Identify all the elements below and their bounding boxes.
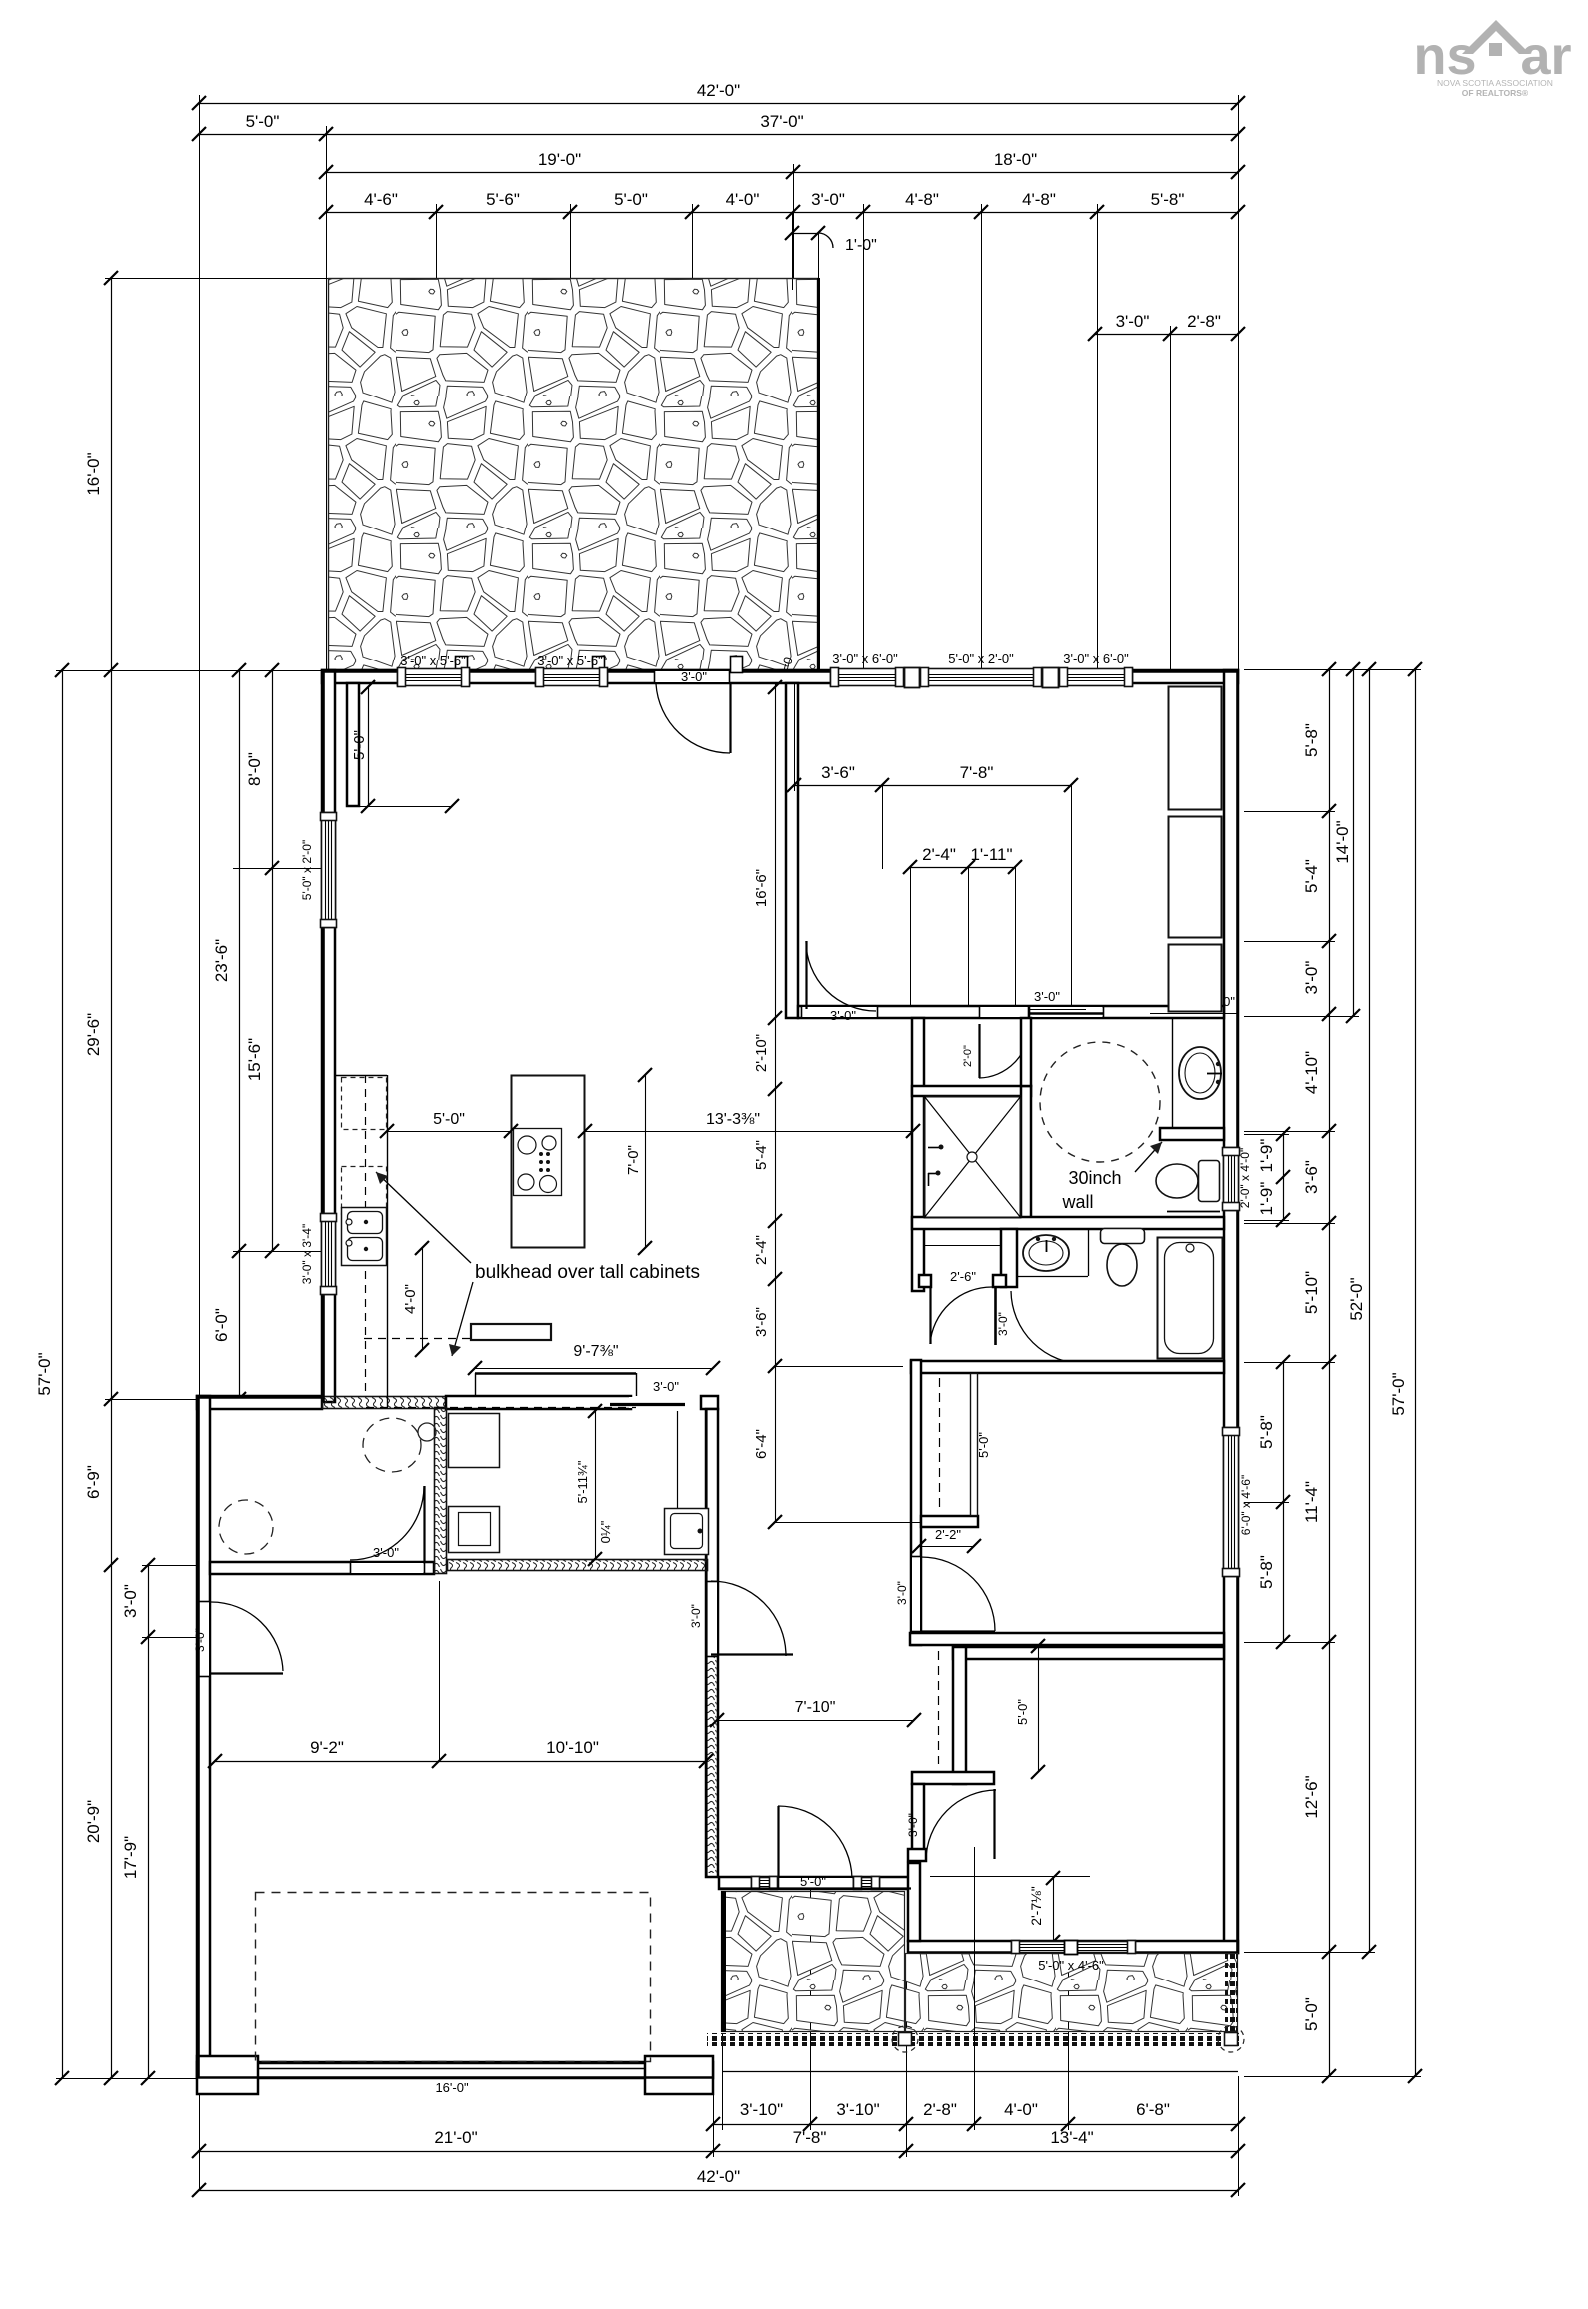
svg-text:13'-4": 13'-4" [1050,2128,1093,2147]
svg-text:5'-0": 5'-0" [246,112,280,131]
svg-text:5'-8": 5'-8" [1257,1415,1276,1449]
svg-text:10'-10": 10'-10" [546,1738,599,1757]
svg-text:3'-0" x 3'-4": 3'-0" x 3'-4" [300,1224,314,1284]
svg-text:2'-8": 2'-8" [1187,312,1221,331]
svg-text:16'-0": 16'-0" [435,2080,469,2095]
svg-text:ar: ar [1520,26,1571,86]
svg-text:2'-4": 2'-4" [753,1235,770,1265]
svg-text:5'-8": 5'-8" [1257,1555,1276,1589]
svg-text:3'-0" x 5'-6": 3'-0" x 5'-6" [537,653,603,668]
svg-text:ns: ns [1413,26,1476,86]
svg-text:37'-0": 37'-0" [760,112,803,131]
svg-text:5'-4": 5'-4" [1302,859,1321,893]
svg-text:3'-0": 3'-0" [996,1312,1010,1336]
svg-text:7'-8": 7'-8" [793,2128,827,2147]
svg-text:4'-8": 4'-8" [905,190,939,209]
svg-text:3'-6": 3'-6" [753,1307,770,1337]
svg-text:16'-6": 16'-6" [753,869,770,907]
svg-text:9'-7⅜": 9'-7⅜" [573,1343,618,1360]
svg-text:21'-0": 21'-0" [434,2128,477,2147]
svg-text:5'-0": 5'-0" [1302,1997,1321,2031]
svg-text:3'-10": 3'-10" [836,2100,879,2119]
svg-text:3'-0": 3'-0" [1116,312,1150,331]
svg-text:6'-9": 6'-9" [84,1465,103,1499]
svg-text:3'-0": 3'-0" [830,1008,856,1023]
svg-text:3'-0": 3'-0" [653,1379,679,1394]
svg-text:3'-0": 3'-0" [906,1813,920,1837]
svg-text:1'-9": 1'-9" [1257,1182,1276,1216]
svg-text:4'-10": 4'-10" [1302,1051,1321,1094]
svg-text:12'-6": 12'-6" [1302,1775,1321,1818]
svg-text:42'-0": 42'-0" [697,81,740,100]
svg-text:3'-0": 3'-0" [689,1604,703,1628]
svg-text:2'-0": 2'-0" [962,1045,974,1067]
svg-text:6'-0" x 4'-6": 6'-0" x 4'-6" [1239,1475,1253,1535]
svg-text:7'-0": 7'-0" [625,1145,642,1175]
svg-text:29'-6": 29'-6" [84,1013,103,1056]
svg-text:2'-7⅛": 2'-7⅛" [1028,1886,1044,1926]
svg-text:6'-0": 6'-0" [212,1308,231,1342]
svg-text:7'-10": 7'-10" [795,1699,836,1716]
svg-text:5'-0": 5'-0" [1015,1699,1030,1725]
svg-text:14'-0": 14'-0" [1333,820,1352,863]
svg-text:3'-0": 3'-0" [373,1545,399,1560]
svg-text:3'-0": 3'-0" [895,1581,909,1605]
svg-text:3'-6": 3'-6" [1302,1160,1321,1194]
svg-text:5'-0" x 2'-0": 5'-0" x 2'-0" [300,840,314,900]
svg-text:3'-0" x 6'-0": 3'-0" x 6'-0" [1063,651,1129,666]
svg-text:5'-0" x 4'-6": 5'-0" x 4'-6" [1038,1958,1104,1973]
svg-text:15'-6": 15'-6" [245,1038,264,1081]
svg-text:4'-0": 4'-0" [1004,2100,1038,2119]
svg-text:2'-4": 2'-4" [922,845,956,864]
svg-text:5'-0": 5'-0" [433,1111,465,1128]
svg-text:4'-0": 4'-0" [726,190,760,209]
svg-text:20'-9": 20'-9" [84,1800,103,1843]
svg-text:19'-0": 19'-0" [538,150,581,169]
svg-text:5'-10": 5'-10" [1302,1271,1321,1314]
svg-text:57'-0": 57'-0" [35,1352,54,1395]
svg-text:3'-0": 3'-0" [811,190,845,209]
svg-text:1'-11": 1'-11" [970,845,1012,864]
svg-text:3'-10": 3'-10" [740,2100,783,2119]
svg-text:4'-0": 4'-0" [402,1284,419,1314]
svg-text:57'-0": 57'-0" [1389,1372,1408,1415]
svg-text:2'-8": 2'-8" [923,2100,957,2119]
svg-text:52'-0": 52'-0" [1347,1277,1366,1320]
svg-text:2'-0" x 4'-0": 2'-0" x 4'-0" [1238,1148,1252,1208]
svg-text:11'-4": 11'-4" [1302,1481,1321,1523]
svg-text:0¼": 0¼" [598,1520,613,1543]
svg-text:wall: wall [1061,1192,1093,1212]
svg-text:4'-6": 4'-6" [364,190,398,209]
svg-text:2'-10": 2'-10" [753,1034,770,1072]
svg-text:2'-6": 2'-6" [950,1269,976,1284]
svg-text:3'-0": 3'-0" [681,669,707,684]
svg-text:3'-0" x 6'-0": 3'-0" x 6'-0" [832,651,898,666]
svg-text:5'-6": 5'-6" [486,190,520,209]
svg-text:13'-3⅜": 13'-3⅜" [706,1111,760,1128]
svg-text:2'-2": 2'-2" [935,1527,961,1542]
svg-text:23'-6": 23'-6" [212,939,231,982]
svg-text:5'-0": 5'-0" [800,1874,826,1889]
svg-text:bulkhead over tall cabinets: bulkhead over tall cabinets [475,1262,700,1283]
svg-text:30inch: 30inch [1068,1168,1121,1188]
svg-text:5'-4": 5'-4" [753,1140,770,1170]
svg-text:6'-8": 6'-8" [1136,2100,1170,2119]
svg-text:8'-0": 8'-0" [245,752,264,786]
svg-text:1'-0": 1'-0" [845,237,877,254]
svg-text:17'-9": 17'-9" [121,1836,140,1879]
svg-text:5'-0": 5'-0" [614,190,648,209]
svg-text:4'-8": 4'-8" [1022,190,1056,209]
svg-text:18'-0": 18'-0" [994,150,1037,169]
svg-text:NOVA SCOTIA ASSOCIATION: NOVA SCOTIA ASSOCIATION [1437,78,1553,88]
svg-text:42'-0": 42'-0" [697,2167,740,2186]
svg-text:5'-11¾": 5'-11¾" [575,1460,590,1503]
svg-text:3'-0": 3'-0" [1034,989,1060,1004]
svg-text:5'-0": 5'-0" [351,730,368,760]
svg-text:9'-2": 9'-2" [310,1738,344,1757]
svg-text:5'-0": 5'-0" [976,1432,991,1458]
svg-text:7'-8": 7'-8" [960,763,994,782]
svg-text:6'-4": 6'-4" [753,1429,770,1459]
svg-text:3'-0": 3'-0" [121,1584,140,1618]
svg-text:16'-0": 16'-0" [84,452,103,495]
svg-text:5'-8": 5'-8" [1302,723,1321,757]
svg-text:3'-0" x 5'-6": 3'-0" x 5'-6" [400,653,466,668]
svg-text:5'-0" x 2'-0": 5'-0" x 2'-0" [948,651,1014,666]
svg-text:3'-0": 3'-0" [1302,961,1321,995]
svg-text:3'-6": 3'-6" [821,763,855,782]
svg-text:1'-9": 1'-9" [1257,1139,1276,1173]
svg-text:3'-0": 3'-0" [193,1628,207,1652]
svg-text:5'-8": 5'-8" [1151,190,1185,209]
svg-text:OF REALTORS®: OF REALTORS® [1462,88,1529,98]
